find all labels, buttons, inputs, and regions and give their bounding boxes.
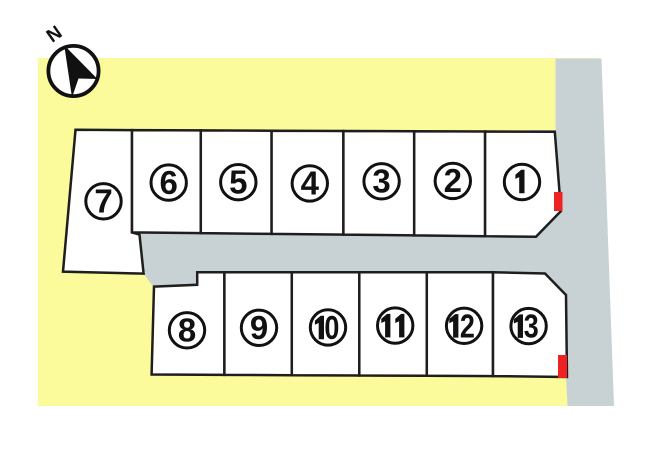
svg-text:2: 2 bbox=[444, 162, 462, 199]
svg-text:4: 4 bbox=[301, 165, 320, 202]
svg-text:0: 0 bbox=[324, 309, 339, 346]
svg-text:6: 6 bbox=[160, 164, 178, 201]
svg-text:2: 2 bbox=[460, 307, 475, 344]
svg-text:3: 3 bbox=[372, 163, 390, 200]
svg-text:7: 7 bbox=[94, 183, 112, 220]
svg-text:8: 8 bbox=[178, 312, 196, 349]
svg-text:3: 3 bbox=[524, 308, 539, 345]
svg-text:5: 5 bbox=[229, 164, 247, 201]
svg-text:9: 9 bbox=[250, 309, 268, 346]
